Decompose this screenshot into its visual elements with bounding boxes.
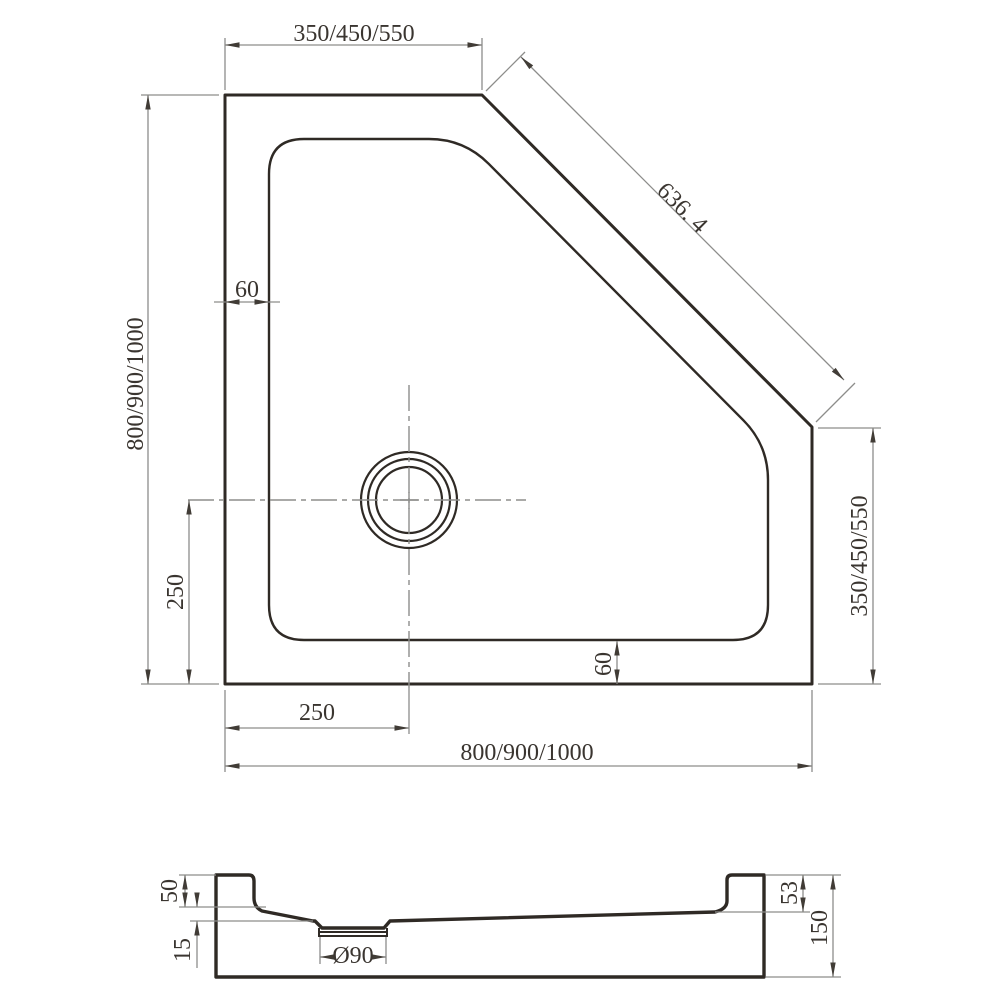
dim-bottom-width: 800/900/1000 <box>225 740 812 766</box>
section-view: 50 15 Ø90 53 150 <box>157 875 841 977</box>
dim-drain-offset-horizontal-label: 250 <box>299 700 335 726</box>
dim-floor-drop: 15 <box>170 894 197 968</box>
dim-diagonal: 636. 4 <box>521 57 844 380</box>
dim-drain-diameter-label: Ø90 <box>332 943 373 969</box>
tray-outer-edge <box>225 95 812 684</box>
dim-wall-thickness-bottom-label: 60 <box>591 652 617 676</box>
drain-centerlines <box>188 385 526 688</box>
dim-left-height: 800/900/1000 <box>123 95 149 684</box>
top-view: 350/450/550 636. 4 800/900/1000 350/450/… <box>123 21 881 772</box>
dim-rim-height: 50 <box>157 875 185 907</box>
dim-total-height: 150 <box>807 875 833 977</box>
extension-lines <box>141 38 881 772</box>
dim-total-height-label: 150 <box>807 910 833 946</box>
dim-diagonal-label: 636. 4 <box>652 178 713 239</box>
dim-wall-thickness-bottom: 60 <box>591 641 617 684</box>
dim-left-height-label: 800/900/1000 <box>123 317 149 450</box>
dim-inner-depth: 53 <box>777 875 803 912</box>
dim-bottom-width-label: 800/900/1000 <box>460 740 593 766</box>
drawing-page: 350/450/550 636. 4 800/900/1000 350/450/… <box>0 0 1000 1000</box>
dim-drain-offset-horizontal: 250 <box>225 700 409 728</box>
dim-wall-thickness-top-label: 60 <box>235 277 259 303</box>
dim-top-width: 350/450/550 <box>225 21 482 47</box>
dim-rim-height-label: 50 <box>157 879 183 903</box>
technical-drawing-canvas: 350/450/550 636. 4 800/900/1000 350/450/… <box>0 0 1000 1000</box>
section-extension-lines <box>179 875 841 977</box>
dim-right-height: 350/450/550 <box>847 428 873 684</box>
dim-top-width-label: 350/450/550 <box>293 21 414 47</box>
dim-drain-diameter: Ø90 <box>320 943 386 969</box>
section-profile <box>216 875 764 977</box>
dim-drain-offset-vertical-label: 250 <box>163 574 189 610</box>
dim-right-height-label: 350/450/550 <box>847 495 873 616</box>
dim-floor-drop-label: 15 <box>170 938 196 962</box>
dim-inner-depth-label: 53 <box>777 881 803 905</box>
dim-drain-offset-vertical: 250 <box>163 500 189 684</box>
